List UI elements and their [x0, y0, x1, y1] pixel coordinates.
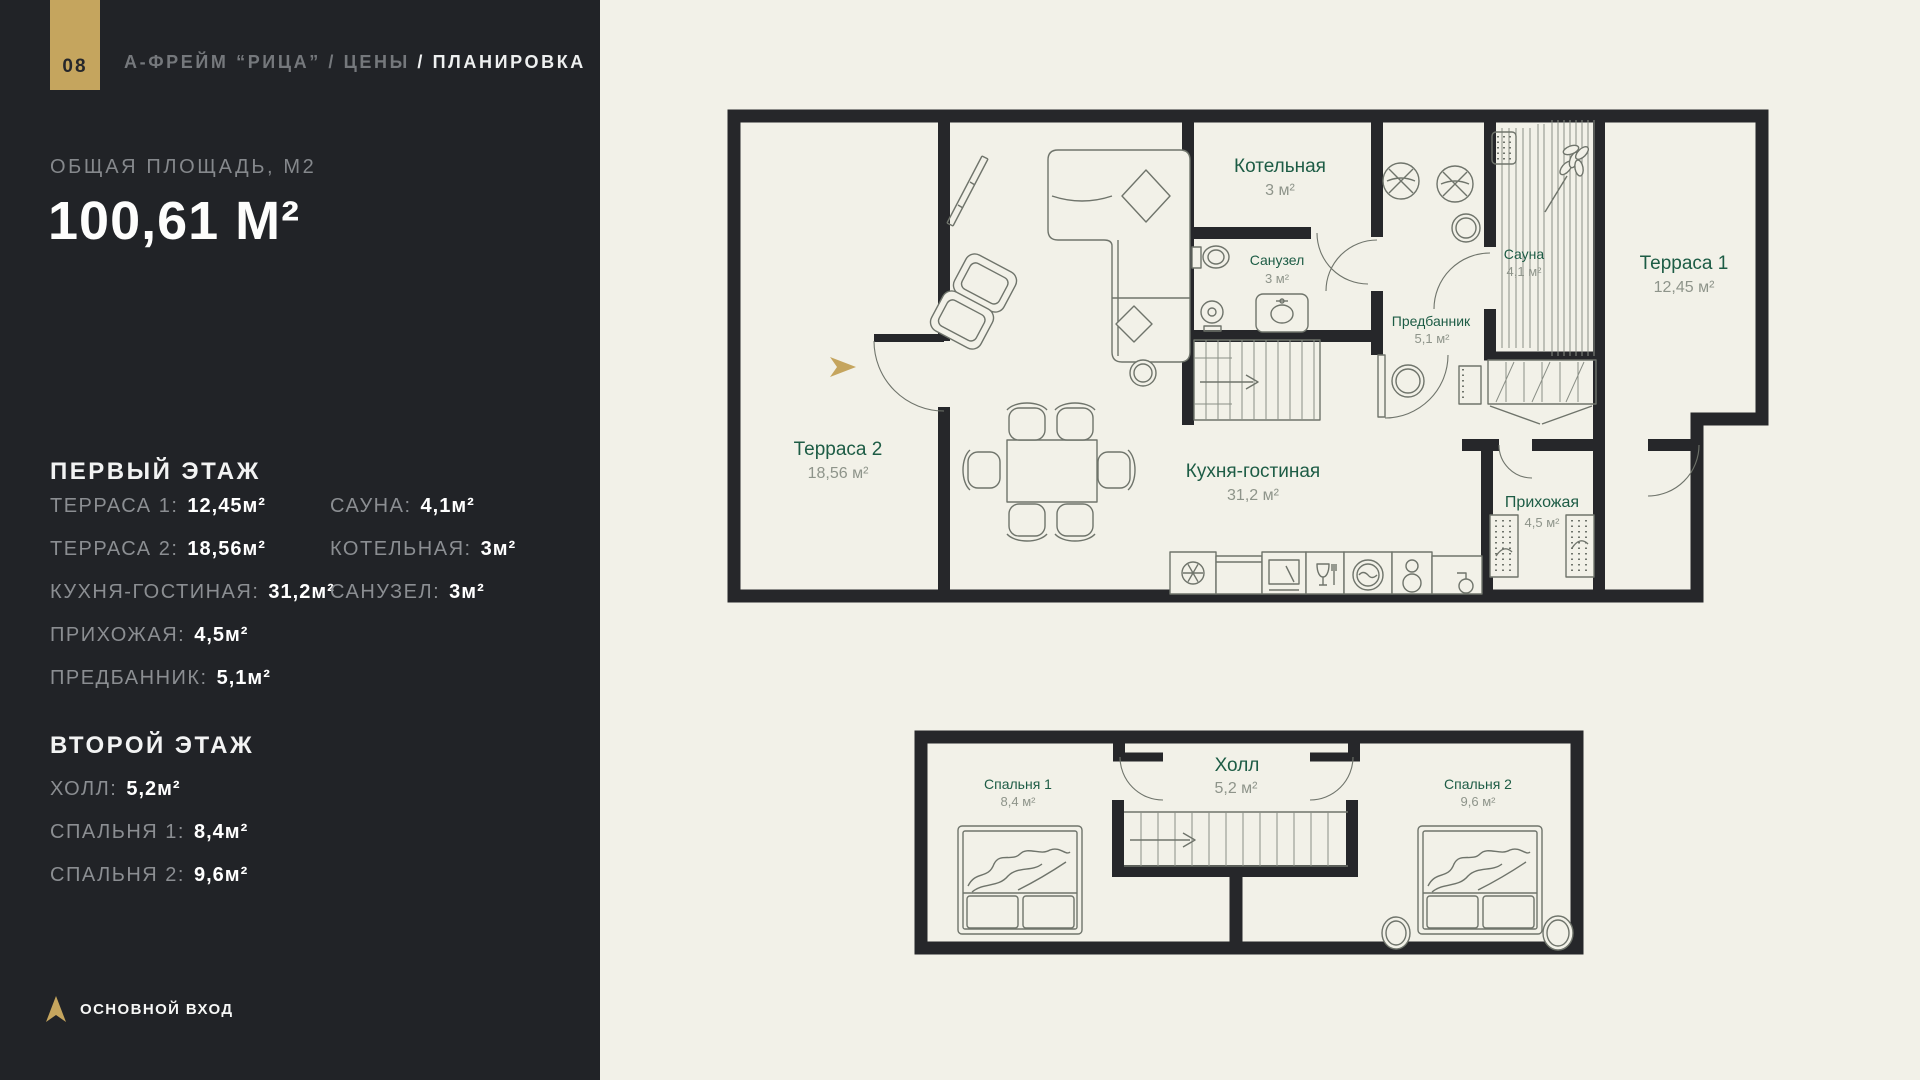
pouf-icon [1383, 163, 1419, 199]
total-area-value: 100,61 М² [48, 190, 300, 252]
stairs-icon [1194, 340, 1320, 420]
list-item: СПАЛЬНЯ 2:9,6м² [50, 863, 330, 906]
page: { "page": { "number": "08" }, "breadcrum… [0, 0, 1920, 1080]
list-item: САУНА:4,1м² [330, 494, 610, 537]
outer-walls [734, 116, 1762, 596]
side-table-icon [1130, 360, 1156, 386]
stairs-icon [1124, 812, 1348, 866]
main-entrance-legend: ОСНОВНОЙ ВХОД [46, 996, 234, 1023]
second-floor-plan: Спальня 1 8,4 м² Холл 5,2 м² Спальня 2 9… [921, 737, 1577, 950]
second-floor-list: ХОЛЛ:5,2м² СПАЛЬНЯ 1:8,4м² СПАЛЬНЯ 2:9,6… [50, 777, 330, 906]
breadcrumb-project-link[interactable]: А-ФРЕЙМ “РИЦА” [124, 52, 321, 72]
list-item: САНУЗЕЛ:3м² [330, 580, 610, 623]
entrance-door-leaf [874, 334, 944, 342]
room-label: Сауна [1504, 246, 1545, 262]
room-area: 18,56 м² [808, 465, 869, 482]
sauna-benches [1492, 120, 1594, 356]
tv-icon [947, 156, 988, 226]
first-floor-plan: Котельная 3 м² Санузел 3 м² Сауна 4,1 м²… [734, 110, 1762, 596]
room-label: Котельная [1234, 156, 1326, 177]
room-label: Спальня 1 [984, 776, 1052, 792]
washer-icon [1344, 552, 1392, 594]
room-label: Спальня 2 [1444, 776, 1512, 792]
list-item: КОТЕЛЬНАЯ:3м² [330, 537, 610, 580]
list-item: ПРИХОЖАЯ:4,5м² [50, 623, 330, 666]
first-floor-list-left: ТЕРРАСА 1:12,45м² ТЕРРАСА 2:18,56м² КУХН… [50, 494, 330, 709]
bed-icon [958, 826, 1082, 934]
room-label: Терраса 1 [1640, 253, 1729, 274]
list-item: ТЕРРАСА 1:12,45м² [50, 494, 330, 537]
pouf-icon [1437, 166, 1473, 202]
room-area: 4,5 м² [1525, 515, 1561, 530]
list-item: КУХНЯ-ГОСТИНАЯ:31,2м² [50, 580, 330, 623]
tub-icon [1392, 365, 1424, 397]
sidebar: 08 А-ФРЕЙМ “РИЦА” / ЦЕНЫ / ПЛАНИРОВКА ОБ… [0, 0, 600, 1080]
rug-icon [1543, 916, 1573, 950]
dining-table-icon [1007, 440, 1097, 502]
kitchen-row [1170, 552, 1482, 594]
total-area-label: ОБЩАЯ ПЛОЩАДЬ, М2 [50, 156, 316, 179]
dishwasher-icon [1306, 552, 1344, 594]
room-area: 5,1 м² [1415, 331, 1451, 346]
sofa-icon [1048, 150, 1190, 362]
main-entrance-arrow-icon [830, 357, 856, 377]
breadcrumb-separator: / [328, 52, 336, 72]
wardrobe-icon [1488, 360, 1596, 424]
stove-icon [1392, 552, 1432, 594]
list-item: ХОЛЛ:5,2м² [50, 777, 330, 820]
shoe-cabinet-icon [1490, 515, 1518, 577]
main-entrance-label: ОСНОВНОЙ ВХОД [80, 1001, 234, 1018]
page-number: 08 [62, 56, 87, 78]
shoe-cabinet-icon [1566, 515, 1594, 577]
room-area: 4,1 м² [1507, 264, 1543, 279]
room-area: 3 м² [1265, 182, 1295, 199]
room-label: Холл [1215, 755, 1260, 776]
boiler-icon [1201, 301, 1223, 331]
breadcrumb-current-page: ПЛАНИРОВКА [433, 52, 586, 72]
list-item: ТЕРРАСА 2:18,56м² [50, 537, 330, 580]
room-label: Кухня-гостиная [1186, 461, 1320, 482]
room-area: 12,45 м² [1654, 279, 1715, 296]
room-label: Терраса 2 [794, 439, 883, 460]
room-area: 3 м² [1265, 271, 1290, 286]
breadcrumb: А-ФРЕЙМ “РИЦА” / ЦЕНЫ / ПЛАНИРОВКА [124, 52, 586, 73]
room-area: 5,2 м² [1214, 780, 1258, 797]
second-floor-title: ВТОРОЙ ЭТАЖ [50, 732, 254, 760]
washbasin-icon [1256, 294, 1308, 332]
toilet-icon [1192, 246, 1229, 268]
list-item: ПРЕДБАННИК:5,1м² [50, 666, 330, 709]
room-area: 9,6 м² [1461, 794, 1497, 809]
bed-icon [1418, 826, 1542, 934]
breadcrumb-prices-link[interactable]: ЦЕНЫ [344, 52, 410, 72]
room-label: Прихожая [1505, 494, 1579, 511]
breadcrumb-separator: / [417, 52, 425, 72]
counter [1432, 556, 1482, 594]
small-table-icon [1459, 366, 1481, 404]
entrance-arrow-icon [46, 996, 66, 1023]
first-floor-title: ПЕРВЫЙ ЭТАЖ [50, 458, 261, 486]
room-area: 8,4 м² [1001, 794, 1037, 809]
first-floor-list-right: САУНА:4,1м² КОТЕЛЬНАЯ:3м² САНУЗЕЛ:3м² [330, 494, 610, 623]
stool-icon [1452, 214, 1480, 242]
rug-icon [1382, 917, 1410, 949]
room-area: 31,2 м² [1227, 487, 1280, 504]
door-leaf [1378, 355, 1385, 417]
room-label: Предбанник [1392, 313, 1471, 329]
page-number-tab: 08 [50, 0, 100, 90]
list-item: СПАЛЬНЯ 1:8,4м² [50, 820, 330, 863]
room-label: Санузел [1250, 252, 1305, 268]
floor-plans: Котельная 3 м² Санузел 3 м² Сауна 4,1 м²… [600, 0, 1920, 1080]
